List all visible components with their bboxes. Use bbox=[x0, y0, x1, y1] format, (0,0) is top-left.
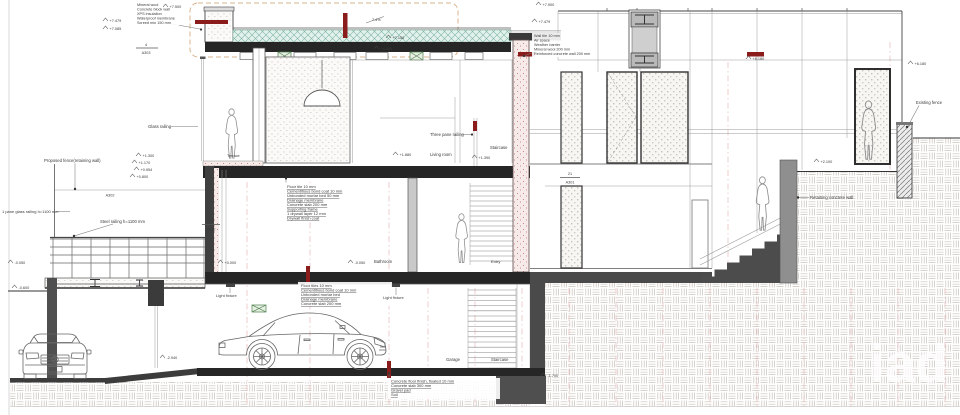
garage-light-b bbox=[391, 284, 400, 287]
elevation-roof-l1: +7.479 bbox=[110, 19, 122, 23]
right-building-ground-slab bbox=[530, 272, 712, 283]
roof-assembly bbox=[204, 7, 561, 52]
section-drawing: Mineral wool Concrete block wall XPS ins… bbox=[0, 0, 960, 415]
garage-beam bbox=[148, 280, 164, 306]
callout-gf-line: Concrete slab 200 mm bbox=[301, 301, 342, 306]
label-staircase-upper: Staircase bbox=[490, 145, 508, 150]
elevation-ramp: -2.940 bbox=[167, 356, 178, 360]
svg-text:4: 4 bbox=[145, 43, 147, 47]
ramp-slab bbox=[105, 368, 200, 384]
elevation-rb-2: +7.479 bbox=[539, 20, 551, 24]
label-entry: Entry bbox=[491, 259, 500, 264]
callout-roof-line: XPS insulation bbox=[137, 12, 162, 16]
label-retaining-wall: Retaining concrete wall bbox=[810, 195, 853, 200]
label-steel-railing: Steel railing h=1100 mm bbox=[100, 219, 145, 224]
label-proposed-fence: Proposed fence(retaining wall) bbox=[44, 158, 101, 163]
callout-wall-line: Reinforced concrete wall 200 mm bbox=[534, 52, 590, 56]
label-garage: Garage bbox=[446, 357, 461, 362]
callout-wall-line: Mineral wool 200 mm bbox=[534, 48, 570, 52]
elevation-ceiling-a: +7.150 bbox=[393, 36, 405, 40]
elevation-deck: -0.050 bbox=[15, 261, 26, 265]
svg-text:A302: A302 bbox=[106, 194, 115, 198]
elevation-terr-1: +1.300 bbox=[143, 154, 155, 158]
label-light-fixture-a: Light fixture bbox=[216, 293, 237, 298]
label-three-pane-railing: Three pane railing bbox=[430, 132, 464, 137]
party-wall bbox=[513, 40, 529, 272]
elevation-roof-l2: +7.085 bbox=[110, 27, 122, 31]
deck bbox=[45, 164, 205, 288]
elevation-roof-top-left: +7.500 bbox=[170, 5, 182, 9]
elevation-terr-4: +0.800 bbox=[137, 175, 149, 179]
person-entry bbox=[456, 214, 468, 263]
garage-floor-slab bbox=[197, 368, 545, 376]
first-floor bbox=[200, 48, 513, 166]
elevation-gf-b: -0.050 bbox=[355, 261, 366, 265]
label-living-room: Living room bbox=[430, 152, 452, 157]
elevation-rb-right: +6.180 bbox=[753, 57, 765, 61]
elevation-rb-top: +7.900 bbox=[543, 3, 555, 7]
elevation-terr-2: +1.170 bbox=[139, 161, 151, 165]
window-large-b bbox=[641, 72, 688, 163]
label-terrace: Terrace bbox=[227, 154, 240, 158]
partition-wall bbox=[408, 178, 417, 272]
svg-text:A303: A303 bbox=[142, 51, 151, 55]
label-bathroom: Bathroom bbox=[374, 259, 393, 264]
car-side-view bbox=[219, 313, 386, 370]
section-marker-a301: 21 A301 bbox=[560, 172, 580, 185]
window-narrow-upper bbox=[561, 72, 582, 163]
callout-roof-line: Waterproof membrane bbox=[137, 17, 175, 21]
label-glass-railing: Glass railing bbox=[148, 124, 172, 129]
retaining-wall bbox=[780, 160, 797, 283]
elevation-terr-3: +0.954 bbox=[141, 168, 153, 172]
section-marker-a303: 4 A303 bbox=[136, 43, 158, 55]
elevation-roof-slope: 7.4% bbox=[372, 18, 381, 22]
elevation-gf-a: +0.000 bbox=[225, 261, 237, 265]
footing bbox=[496, 376, 546, 404]
callout-wall-line: Weather barrier bbox=[534, 43, 561, 47]
label-existing-fence: Existing fence bbox=[916, 100, 943, 105]
person-stairs bbox=[756, 177, 769, 230]
glass-panel bbox=[266, 57, 350, 163]
svg-text:A301: A301 bbox=[566, 181, 575, 185]
svg-text:A312: A312 bbox=[207, 228, 216, 232]
glass-railing-cap bbox=[200, 57, 206, 60]
elevation-yard: +2.100 bbox=[821, 160, 833, 164]
elevation-ff-a: +1.880 bbox=[400, 153, 412, 157]
callout-roof-line: Mineral wool bbox=[137, 3, 158, 7]
terrace-floor-topping bbox=[203, 161, 263, 166]
window-narrow-lower bbox=[561, 186, 582, 268]
label-staircase-lower: Staircase bbox=[491, 357, 509, 362]
svg-text:24: 24 bbox=[209, 219, 213, 223]
chimney bbox=[629, 10, 660, 68]
first-floor-slab bbox=[203, 166, 530, 178]
callout-garage-line: Soil bbox=[391, 392, 398, 397]
person-terrace bbox=[226, 109, 238, 158]
elevation-ff-b: +1.390 bbox=[479, 156, 491, 160]
callout-wall-line: Air space bbox=[534, 39, 550, 43]
architectural-section-sheet: Mineral wool Concrete block wall XPS ins… bbox=[0, 0, 960, 415]
elevation-footing: -1.700 bbox=[548, 374, 559, 378]
ceiling-vent-green-b bbox=[410, 52, 423, 60]
window-large-a bbox=[607, 72, 637, 163]
elevation-ceiling-b: +4.485 bbox=[381, 47, 393, 51]
stairs-upper-flight bbox=[470, 183, 516, 265]
label-one-pane-railing: 1 pane glass railing h=1100 mm bbox=[2, 209, 59, 214]
garage-door-track bbox=[252, 305, 266, 312]
garage-light-a bbox=[226, 284, 235, 287]
garage-door bbox=[155, 306, 158, 368]
section-marker-a302: A302 bbox=[106, 194, 115, 198]
callout-roof-line: Concrete block wall bbox=[137, 8, 170, 12]
basement-wall-right bbox=[530, 272, 545, 376]
watermark-logo: iad bbox=[870, 334, 948, 394]
callout-ff-line: Drywall finish coat bbox=[287, 216, 320, 221]
entry-door-right-building bbox=[692, 200, 708, 268]
callout-roof-line: Screed min 150 mm bbox=[137, 21, 171, 25]
svg-text:21: 21 bbox=[568, 172, 572, 176]
elevation-far-right: +6.180 bbox=[915, 62, 927, 66]
label-light-fixture-b: Light fixture bbox=[383, 295, 404, 300]
elevation-grade-left: -0.600 bbox=[19, 286, 30, 290]
callout-wall-line: Wall tile 10 mm bbox=[534, 34, 560, 38]
existing-fence bbox=[896, 122, 913, 198]
